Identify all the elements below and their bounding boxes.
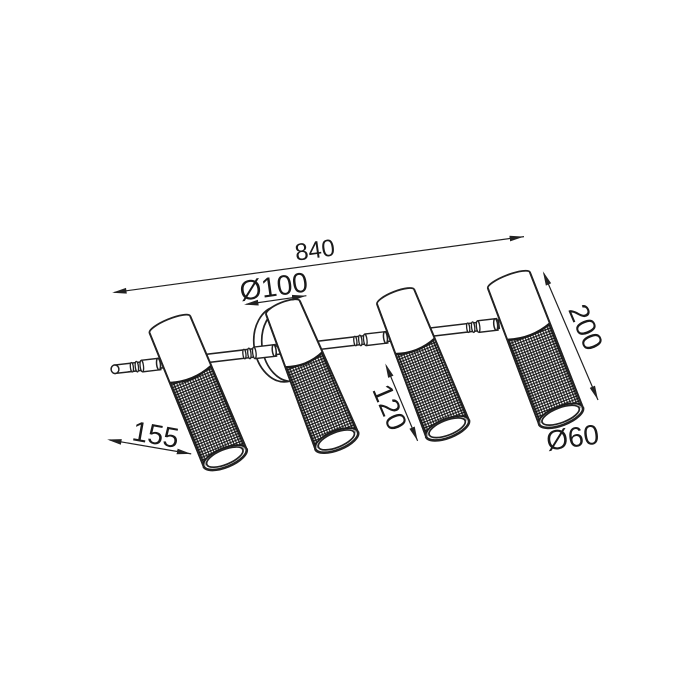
svg-text:840: 840 — [293, 234, 336, 266]
